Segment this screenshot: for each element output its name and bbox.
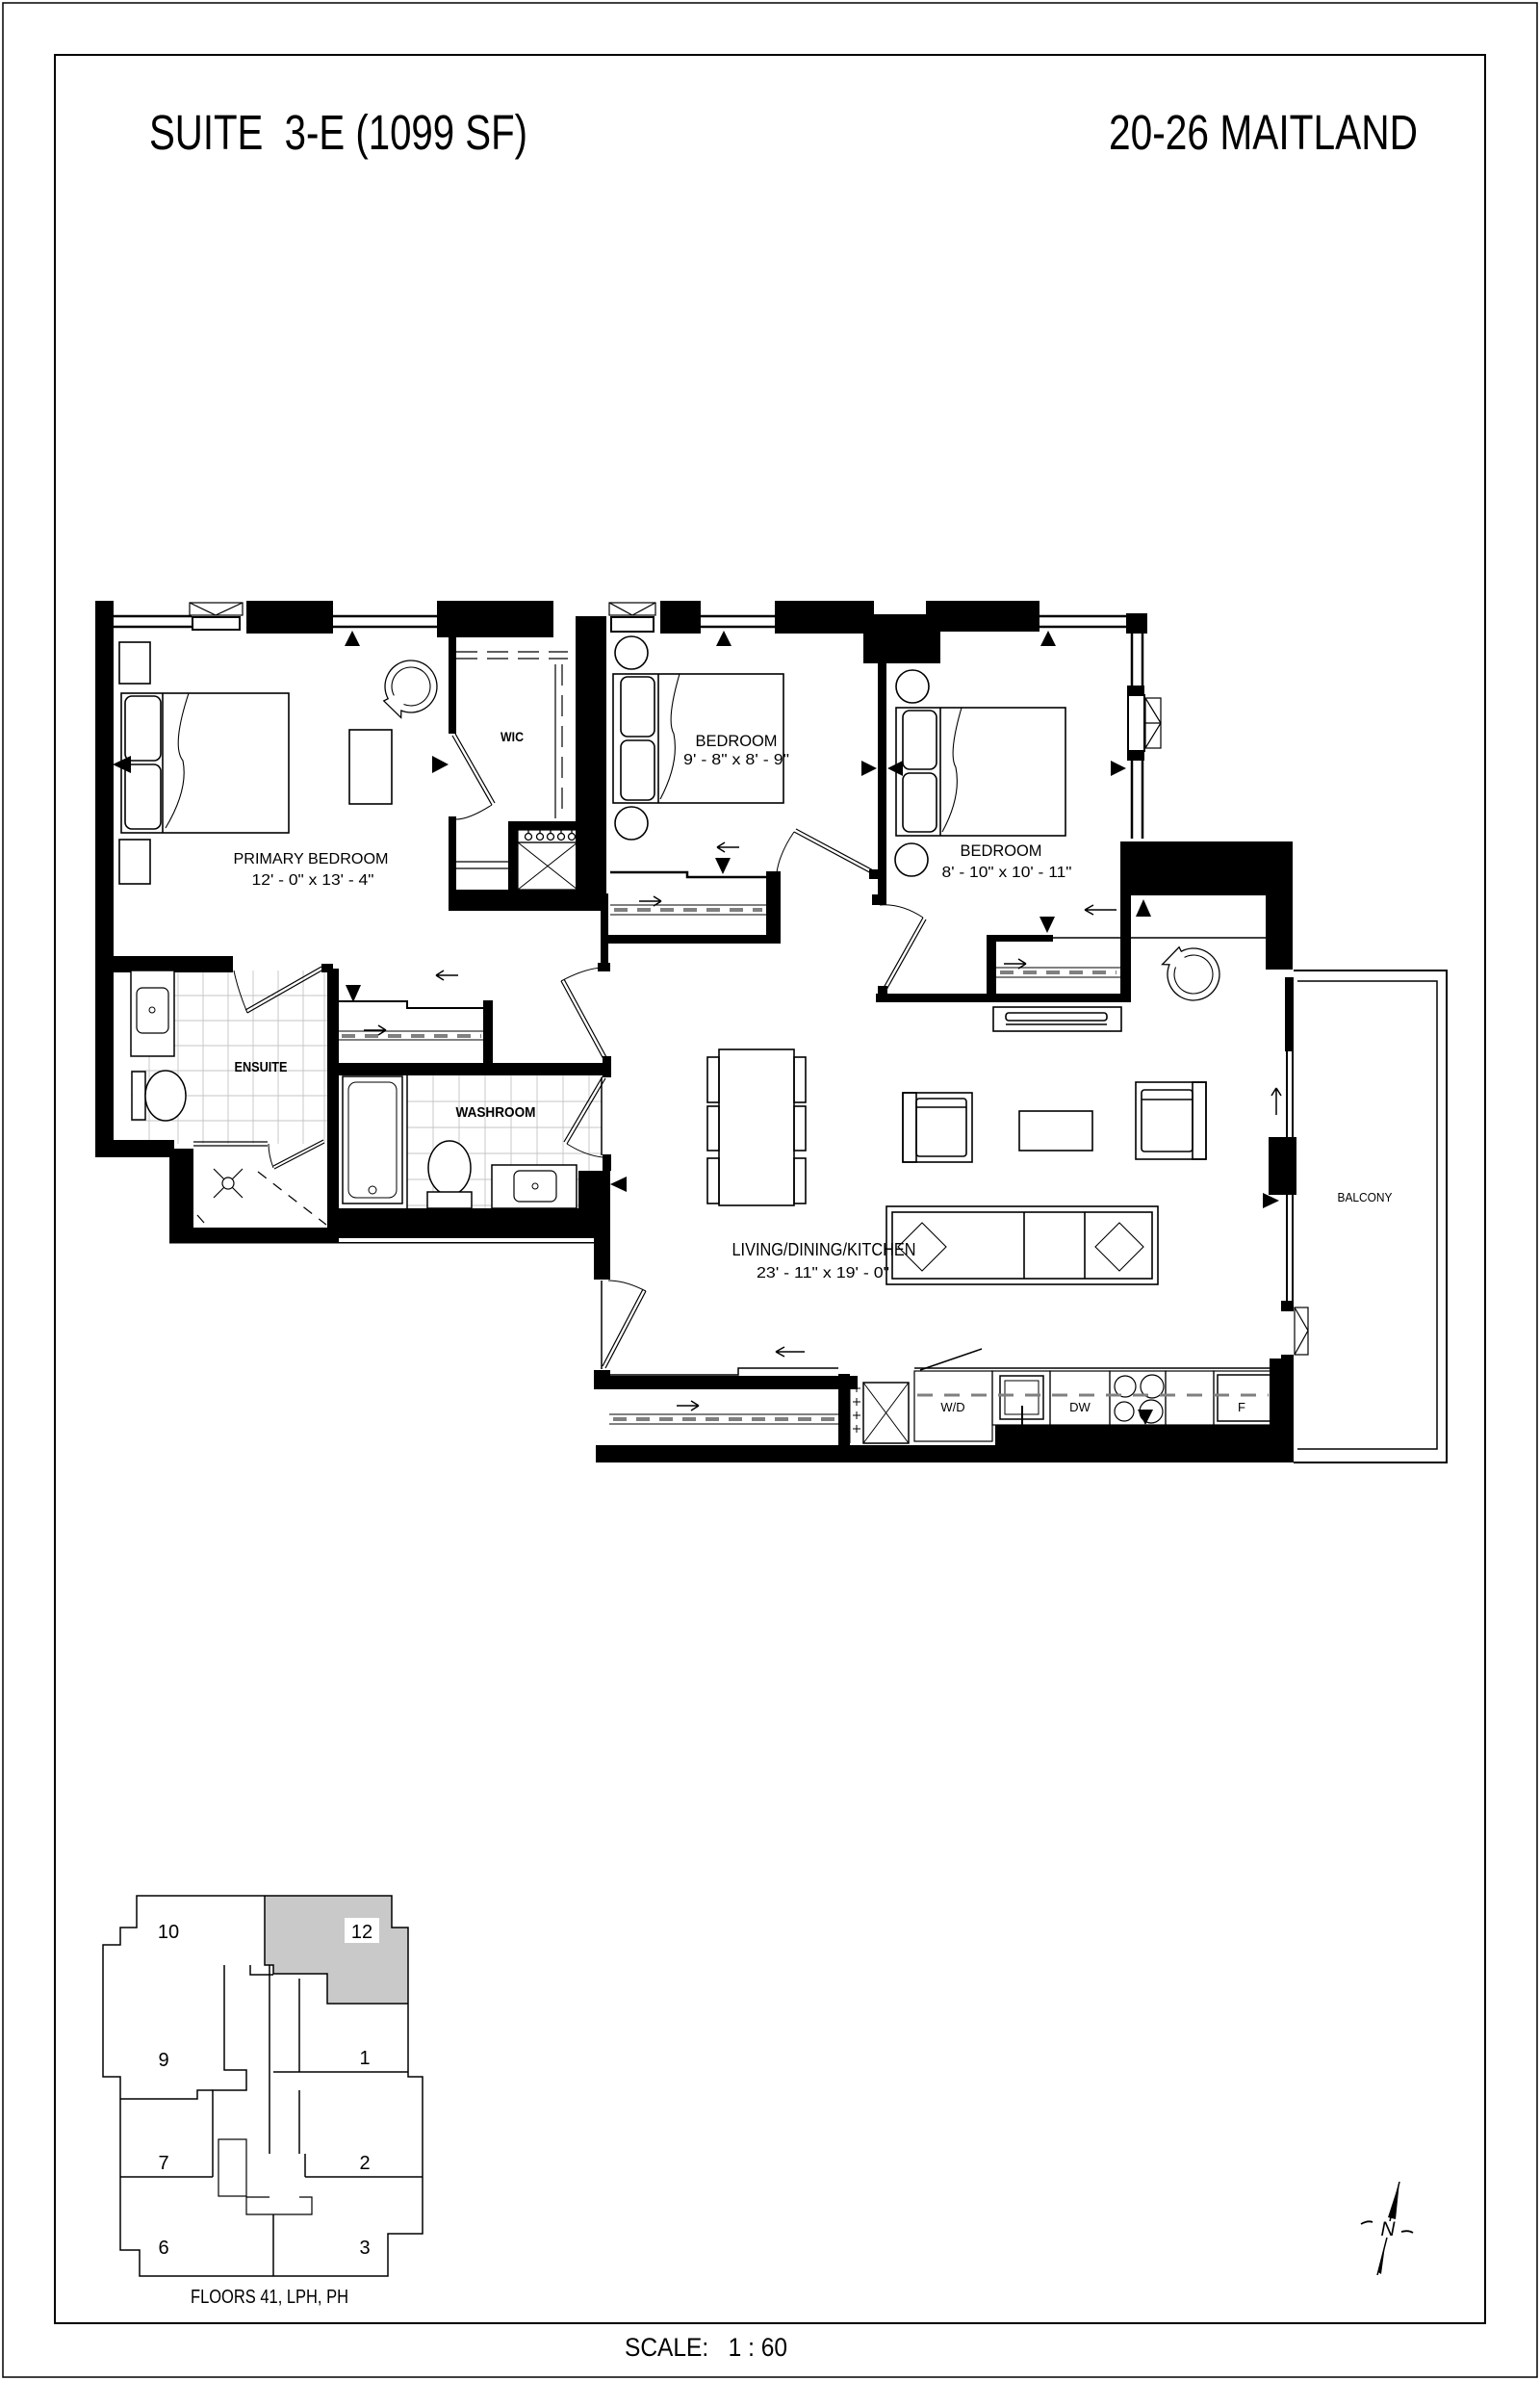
svg-text:BEDROOM: BEDROOM: [961, 842, 1042, 860]
svg-text:8' - 10" x 10' - 11": 8' - 10" x 10' - 11": [942, 865, 1072, 881]
svg-text:N: N: [1380, 2218, 1396, 2240]
svg-text:1: 1: [359, 2048, 370, 2069]
svg-text:DW: DW: [1069, 1400, 1091, 1414]
svg-text:12' - 0" x 13' - 4": 12' - 0" x 13' - 4": [252, 872, 374, 889]
svg-text:LIVING/DINING/KITCHEN: LIVING/DINING/KITCHEN: [732, 1239, 916, 1259]
svg-text:23' - 11" x 19' - 0": 23' - 11" x 19' - 0": [757, 1265, 889, 1281]
svg-text:F: F: [1238, 1400, 1245, 1414]
svg-text:BEDROOM: BEDROOM: [696, 733, 778, 750]
svg-text:WASHROOM: WASHROOM: [456, 1104, 536, 1121]
svg-text:3: 3: [359, 2238, 370, 2259]
svg-text:6: 6: [158, 2238, 168, 2259]
svg-text:BALCONY: BALCONY: [1338, 1190, 1393, 1204]
svg-text:W/D: W/D: [940, 1400, 964, 1414]
svg-text:2: 2: [359, 2153, 370, 2174]
svg-text:WIC: WIC: [500, 729, 524, 744]
svg-text:PRIMARY BEDROOM: PRIMARY BEDROOM: [234, 851, 389, 867]
svg-text:12: 12: [351, 1922, 372, 1943]
svg-text:9' - 8" x 8' - 9": 9' - 8" x 8' - 9": [683, 752, 789, 768]
svg-text:10: 10: [158, 1922, 179, 1943]
svg-text:FLOORS 41, LPH, PH: FLOORS 41, LPH, PH: [191, 2287, 348, 2308]
svg-text:ENSUITE: ENSUITE: [235, 1060, 288, 1075]
svg-text:SCALE: 1 : 60: SCALE: 1 : 60: [625, 2333, 787, 2362]
svg-text:SUITE 3-E (1099 SF): SUITE 3-E (1099 SF): [149, 105, 527, 160]
svg-text:7: 7: [158, 2153, 168, 2174]
svg-text:20-26 MAITLAND: 20-26 MAITLAND: [1109, 105, 1418, 160]
svg-text:9: 9: [158, 2050, 168, 2071]
